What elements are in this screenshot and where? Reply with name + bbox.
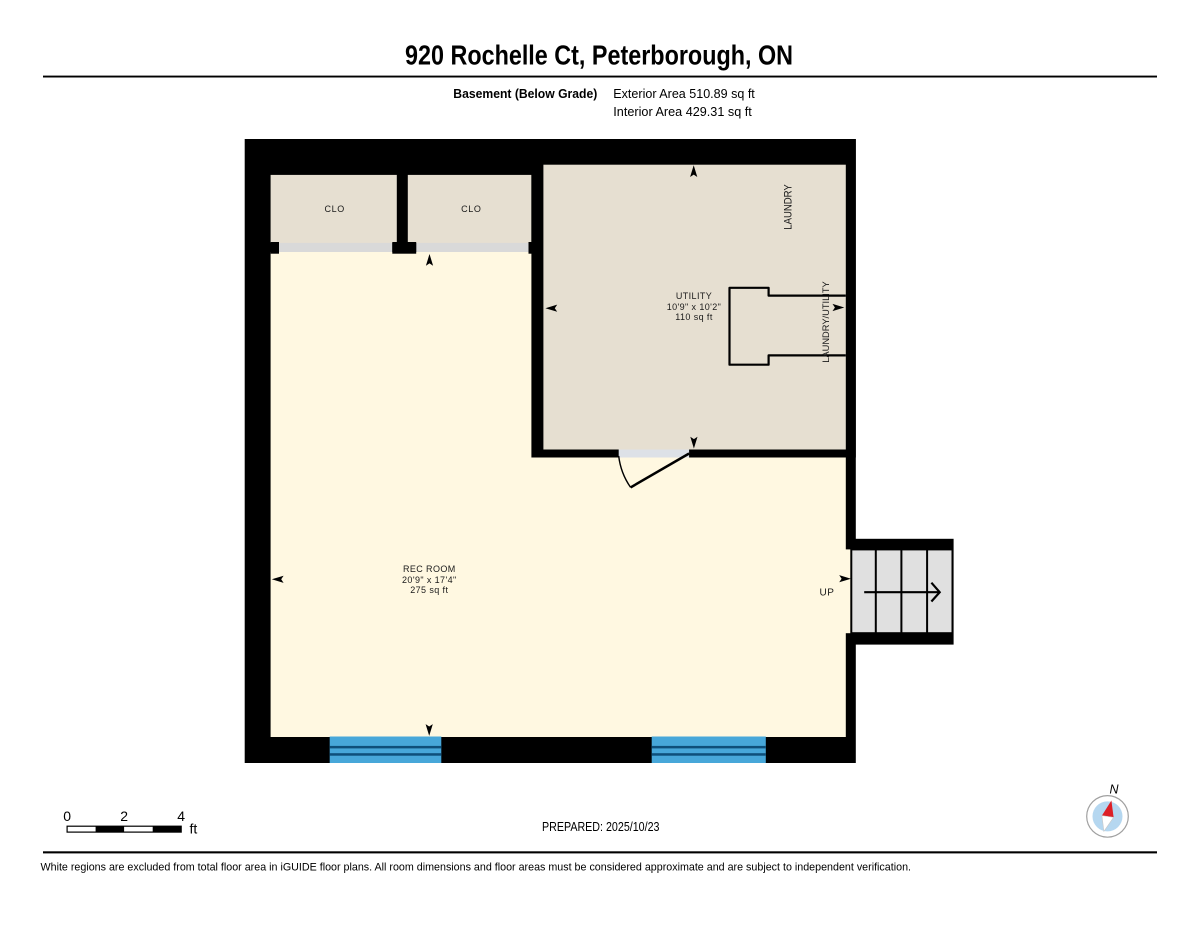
svg-text:4: 4 [177,808,185,824]
svg-text:LAUNDRY/UTILITY: LAUNDRY/UTILITY [821,281,832,363]
svg-text:CLO: CLO [325,204,345,214]
svg-text:920 Rochelle Ct, Peterborough,: 920 Rochelle Ct, Peterborough, ON [405,40,793,71]
svg-text:Interior Area 429.31 sq ft: Interior Area 429.31 sq ft [613,104,752,119]
svg-text:PREPARED: 2025/10/23: PREPARED: 2025/10/23 [542,820,660,834]
svg-text:LAUNDRY: LAUNDRY [783,184,795,230]
svg-text:Basement (Below Grade): Basement (Below Grade) [453,86,597,101]
svg-text:N: N [1109,783,1119,797]
svg-text:10'9" x 10'2": 10'9" x 10'2" [667,302,722,312]
svg-text:2: 2 [120,808,128,824]
svg-text:CLO: CLO [461,204,481,214]
svg-text:White regions are excluded fro: White regions are excluded from total fl… [41,861,912,873]
svg-text:Exterior Area 510.89 sq ft: Exterior Area 510.89 sq ft [613,86,755,101]
svg-text:ft: ft [190,821,198,837]
svg-text:110 sq ft: 110 sq ft [675,312,713,322]
svg-text:275 sq ft: 275 sq ft [410,585,448,595]
svg-text:UTILITY: UTILITY [676,291,712,301]
svg-text:0: 0 [63,808,71,824]
svg-text:UP: UP [820,588,835,599]
svg-text:REC ROOM: REC ROOM [403,564,456,574]
svg-text:20'9" x 17'4": 20'9" x 17'4" [402,575,457,585]
